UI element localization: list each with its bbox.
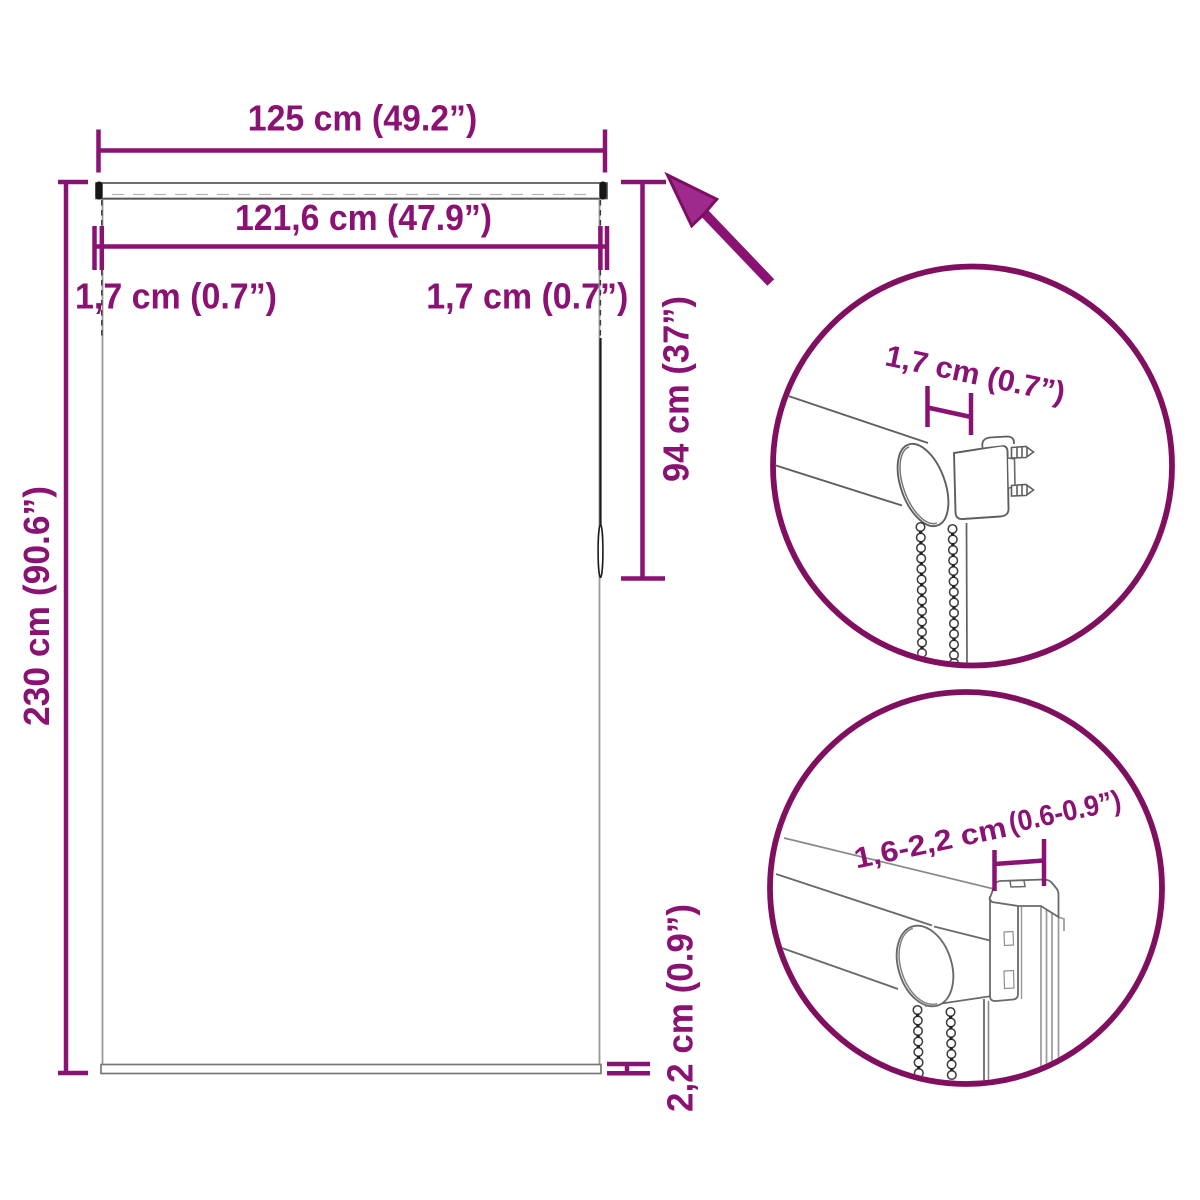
svg-text:94 cm (37”): 94 cm (37”) <box>656 296 697 482</box>
svg-text:230 cm (90.6”): 230 cm (90.6”) <box>16 486 57 726</box>
svg-text:1,7 cm (0.7”): 1,7 cm (0.7”) <box>426 276 628 317</box>
svg-text:121,6 cm (47.9”): 121,6 cm (47.9”) <box>235 197 492 238</box>
svg-text:2,2 cm (0.9”): 2,2 cm (0.9”) <box>660 904 701 1112</box>
svg-text:125 cm (49.2”): 125 cm (49.2”) <box>248 98 478 139</box>
svg-text:1,7 cm (0.7”): 1,7 cm (0.7”) <box>75 276 277 317</box>
